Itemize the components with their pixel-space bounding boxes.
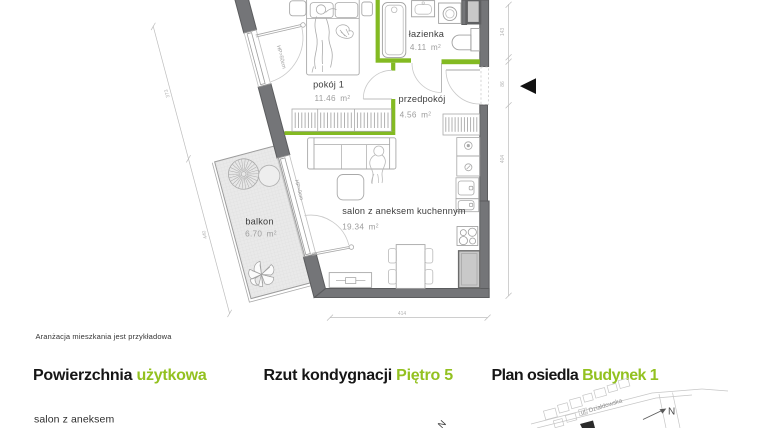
svg-text:86: 86 xyxy=(500,81,506,87)
svg-text:balkon: balkon xyxy=(245,217,273,227)
svg-text:Plan osiedla Budynek 1: Plan osiedla Budynek 1 xyxy=(492,367,659,384)
svg-text:404: 404 xyxy=(500,155,506,164)
svg-text:salon z aneksem kuchennym: salon z aneksem kuchennym xyxy=(342,206,466,216)
svg-text:143: 143 xyxy=(500,28,506,37)
svg-text:11.46 m2: 11.46 m2 xyxy=(315,94,351,103)
svg-text:Rzut kondygnacji Piętro 5: Rzut kondygnacji Piętro 5 xyxy=(264,367,454,384)
svg-text:6.70 m2: 6.70 m2 xyxy=(245,230,277,239)
svg-text:łazienka: łazienka xyxy=(409,29,445,39)
svg-text:414: 414 xyxy=(398,311,407,317)
svg-text:pokój 1: pokój 1 xyxy=(313,80,344,90)
svg-text:Aranżacja mieszkania jest przy: Aranżacja mieszkania jest przykładowa xyxy=(36,332,173,341)
svg-text:N: N xyxy=(668,407,675,418)
svg-text:przedpokój: przedpokój xyxy=(399,94,446,104)
svg-text:Powierzchnia użytkowa: Powierzchnia użytkowa xyxy=(33,367,207,384)
svg-text:4.56 m2: 4.56 m2 xyxy=(400,111,432,120)
svg-text:4.11 m2: 4.11 m2 xyxy=(410,43,441,52)
svg-text:salon z aneksem: salon z aneksem xyxy=(34,413,114,425)
svg-text:19.34 m2: 19.34 m2 xyxy=(342,223,379,232)
